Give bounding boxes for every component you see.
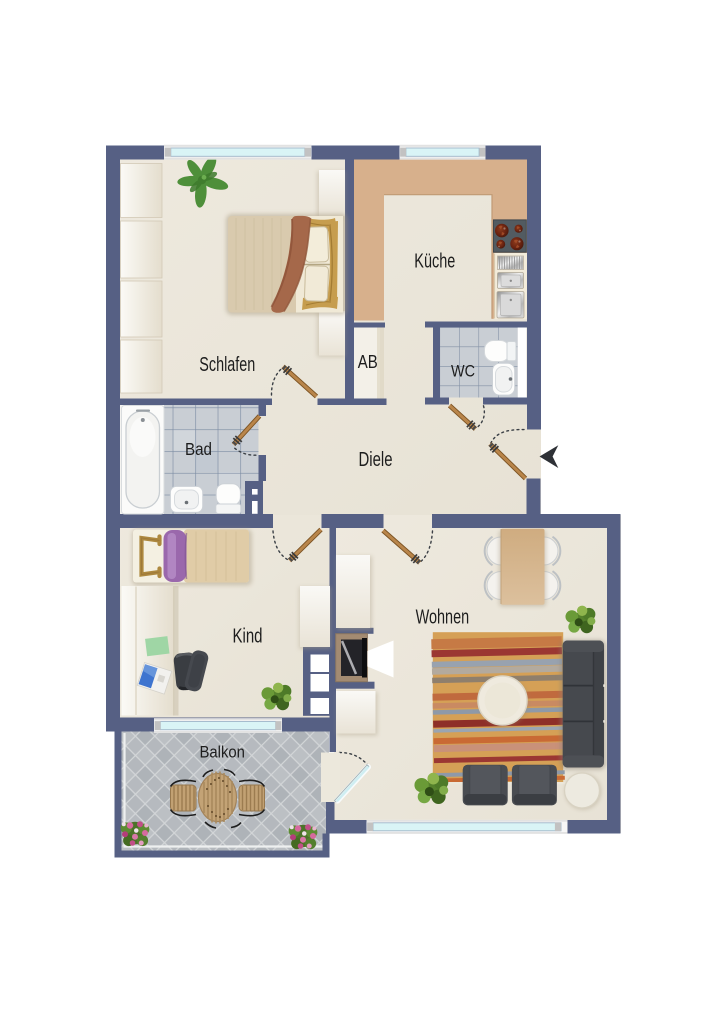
svg-text:Wohnen: Wohnen (416, 607, 470, 629)
svg-text:AB: AB (358, 352, 378, 372)
svg-text:Diele: Diele (359, 449, 393, 471)
svg-text:Schlafen: Schlafen (199, 354, 255, 376)
svg-text:Küche: Küche (414, 251, 455, 273)
svg-text:Bad: Bad (185, 439, 212, 459)
svg-text:Kind: Kind (233, 626, 263, 648)
svg-text:Balkon: Balkon (199, 742, 245, 761)
svg-text:WC: WC (451, 363, 475, 381)
